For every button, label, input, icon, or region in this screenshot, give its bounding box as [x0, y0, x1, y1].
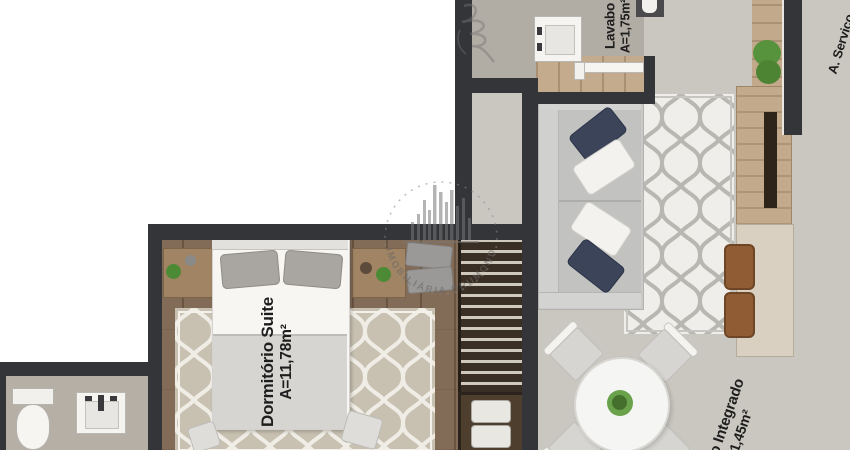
wall: [522, 92, 655, 104]
door: [584, 62, 644, 73]
door-jamb: [574, 62, 585, 80]
wall: [0, 362, 162, 376]
wall: [148, 224, 162, 450]
stool: [724, 244, 755, 290]
table-centerpiece: [607, 390, 633, 416]
room-name: Dormitório Suite: [258, 297, 277, 427]
bathroom-sink: [76, 392, 126, 434]
lavabo-sink: [534, 16, 582, 62]
room-label-lavabo: Lavabo A=1,75m²: [603, 0, 634, 53]
wall: [148, 224, 522, 240]
wine-rack: [458, 230, 528, 400]
decor-bowl: [360, 262, 372, 274]
room-name: Lavabo: [603, 3, 618, 49]
plant-icon: [756, 60, 781, 84]
toilet-tank: [12, 388, 54, 405]
bed-pillow: [283, 250, 344, 290]
decor-bowl: [185, 255, 196, 266]
toilet-icon: [16, 404, 50, 450]
cabinet: [458, 392, 528, 450]
floor-plan: Dormitório Suite A=11,78m² Lavabo A=1,75…: [0, 0, 850, 450]
plant-icon: [376, 267, 391, 282]
plant-icon: [166, 264, 181, 279]
wall: [782, 0, 802, 135]
stool: [724, 292, 755, 338]
room-area: A=11,78m²: [278, 297, 296, 427]
cabinet-item: [471, 400, 511, 423]
wall: [472, 78, 538, 93]
wall: [522, 92, 538, 450]
bedroom-bench: [404, 240, 456, 292]
bed-pillow: [220, 250, 281, 290]
room-area: A=1,75m²: [619, 0, 634, 53]
wall: [455, 0, 472, 240]
wall: [644, 56, 655, 96]
wall: [0, 376, 6, 450]
room-label-suite: Dormitório Suite A=11,78m²: [258, 297, 296, 427]
lavabo-toilet: [636, 0, 664, 17]
counter-cooktop: [764, 112, 777, 208]
cabinet-item: [471, 425, 511, 448]
